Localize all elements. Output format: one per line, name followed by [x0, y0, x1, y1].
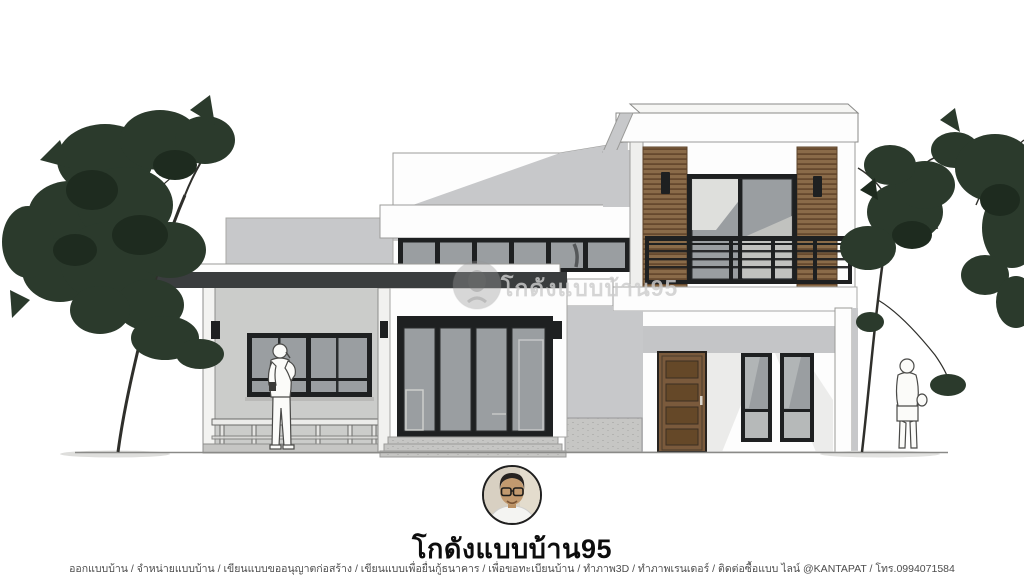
ground-floor-window	[780, 353, 814, 442]
wall-sconce-icon	[553, 321, 562, 339]
back-wall-left	[226, 218, 393, 268]
parapet-band	[380, 205, 643, 238]
watermark-text: โกดังแบบบ้าน95	[501, 271, 678, 307]
avatar-portrait	[484, 467, 540, 523]
tower-ground-floor	[613, 308, 858, 452]
concrete-pad	[565, 418, 642, 452]
bag-icon	[917, 394, 927, 406]
watermark-logo	[453, 261, 501, 309]
right-tree	[840, 108, 1024, 452]
wall-sconce-icon	[211, 321, 220, 339]
footer-services-line: ออกแบบบ้าน / จำหน่ายแบบบ้าน / เขียนแบบขอ…	[0, 560, 1024, 577]
ground-floor-window	[741, 353, 772, 442]
entry-steps	[380, 437, 566, 457]
shorts	[897, 405, 918, 421]
wooden-entry-door	[658, 352, 706, 452]
person-walking	[897, 359, 928, 448]
middle-volume	[378, 288, 567, 457]
corner-pillar	[835, 308, 852, 452]
avatar	[482, 465, 542, 525]
porch-ceiling-shadow	[643, 326, 835, 353]
left-tree-foliage	[2, 95, 235, 369]
folding-glass-door	[397, 316, 553, 437]
wall-sconce-icon	[813, 176, 822, 197]
wall-sconce-icon	[380, 321, 388, 338]
back-building	[226, 142, 643, 272]
right-tree-foliage	[840, 108, 1024, 396]
porch-column	[203, 287, 215, 452]
porch-window	[245, 333, 374, 401]
cup-icon	[269, 382, 276, 391]
door-handle-icon	[700, 396, 703, 405]
porch-base	[203, 444, 390, 453]
wall-sconce-icon	[661, 172, 670, 194]
house-plan-poster: โกดังแบบบ้าน95 โกดังแบบบ้าน95 ออกแบบบ้าน…	[0, 0, 1024, 582]
left-porch-wing	[203, 287, 390, 453]
